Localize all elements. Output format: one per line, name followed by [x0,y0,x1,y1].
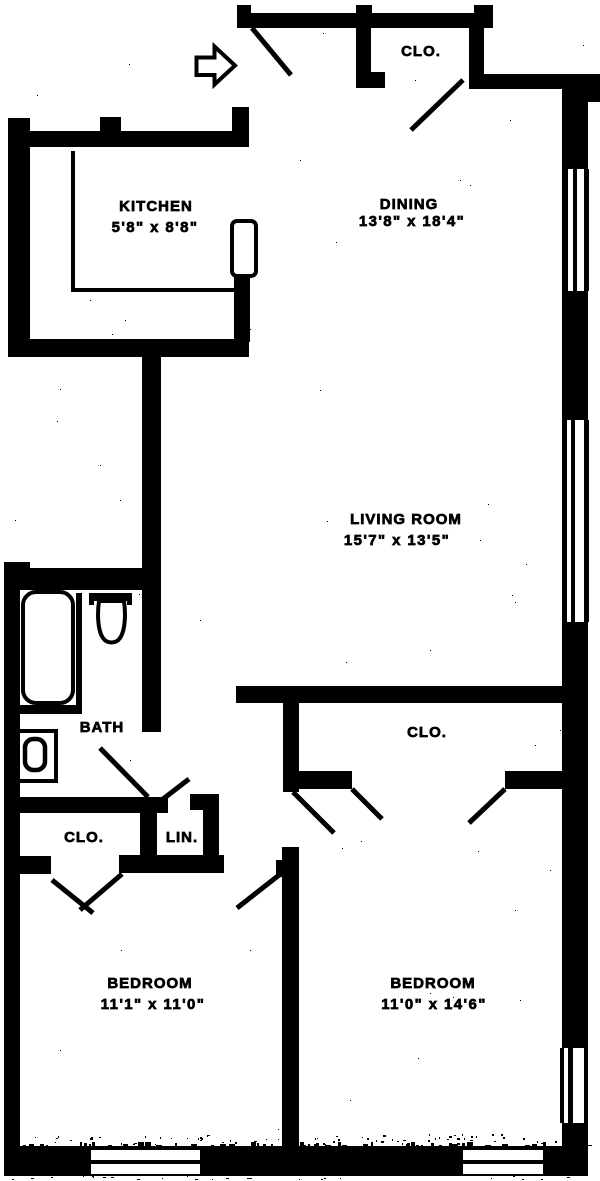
svg-text:11'1" x 11'0": 11'1" x 11'0" [101,996,206,1013]
svg-text:LIN.: LIN. [166,829,198,846]
svg-text:CLO.: CLO. [407,724,447,741]
svg-text:BATH: BATH [80,719,125,736]
svg-text:5'8" x 8'8": 5'8" x 8'8" [112,219,199,236]
svg-text:BEDROOM: BEDROOM [390,975,475,992]
svg-text:CLO.: CLO. [64,829,104,846]
svg-text:11'0" x 14'6": 11'0" x 14'6" [381,996,486,1013]
svg-text:DINING: DINING [380,196,439,213]
svg-text:13'8" x 18'4": 13'8" x 18'4" [359,213,465,230]
svg-text:CLO.: CLO. [401,43,441,60]
svg-text:KITCHEN: KITCHEN [119,198,193,215]
svg-text:LIVING ROOM: LIVING ROOM [350,511,462,528]
svg-text:15'7" x 13'5": 15'7" x 13'5" [344,532,450,549]
svg-text:BEDROOM: BEDROOM [107,975,192,992]
